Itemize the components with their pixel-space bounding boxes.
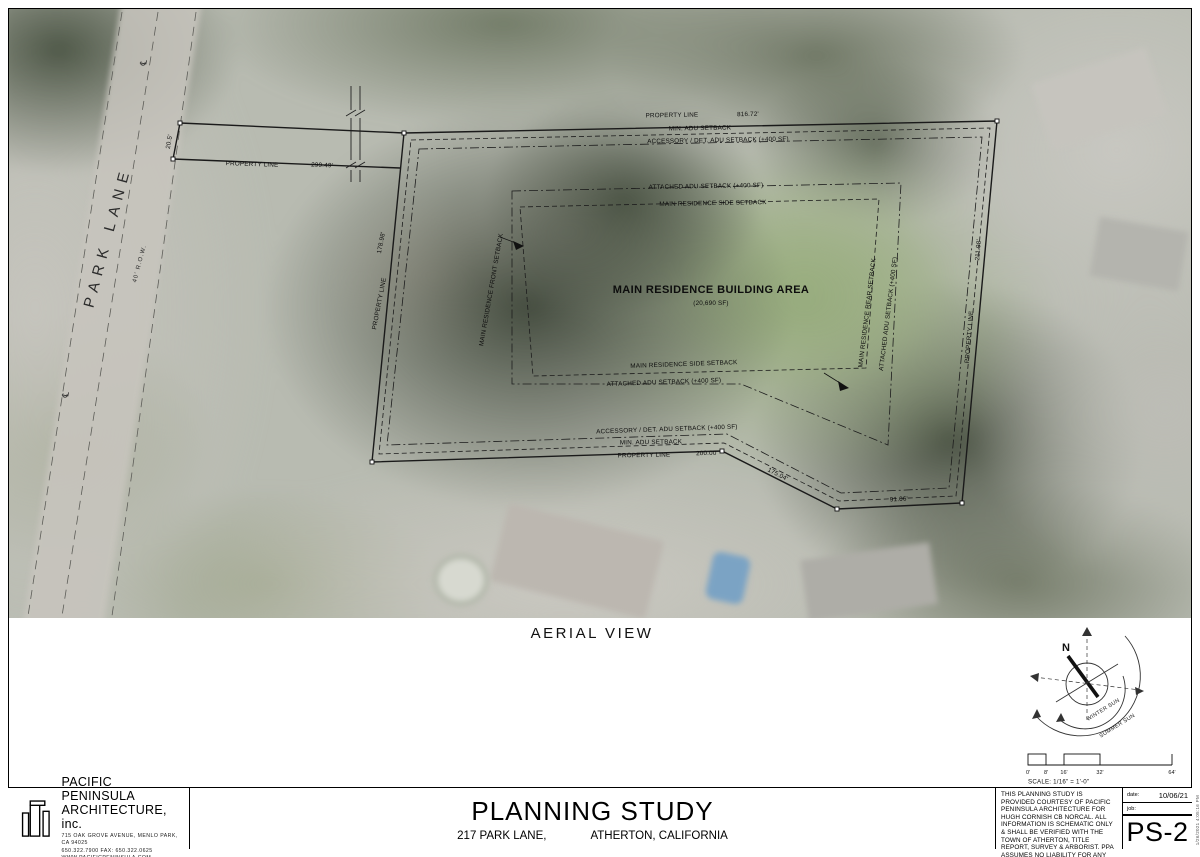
attached-adu-setback-label: ATTACHED ADU SETBACK (+400 SF)	[878, 256, 899, 371]
property-line-dim: 91.06'	[890, 496, 909, 504]
plan-labels: PROPERTY LINE 816.72' MIN. ADU SETBACK A…	[165, 111, 983, 504]
disclaimer-cell: THIS PLANNING STUDY IS PROVIDED COURTESY…	[996, 788, 1123, 849]
sheet-number: PS-2	[1123, 816, 1192, 849]
row-width-label: 40' R.O.W.	[132, 244, 148, 283]
rear-setback-label: MAIN RESIDENCE REAR SETBACK	[857, 257, 877, 368]
strip-width-dim: 20.5'	[165, 134, 174, 149]
firm-address: 715 OAK GROVE AVENUE, MENLO PARK, CA 940…	[62, 833, 186, 847]
plan-sheet: ℄ ℄ PARK LANE 40' R.O.W.	[0, 0, 1200, 857]
min-adu-setback-label: MIN. ADU SETBACK	[620, 438, 683, 446]
property-line-label: PROPERTY LINE	[646, 112, 699, 120]
building-area-sf: (20,690 SF)	[693, 300, 728, 307]
property-line-dim: 299.49'	[311, 162, 333, 170]
scale-tick: 8'	[1044, 770, 1048, 776]
property-line-label: PROPERTY LINE	[226, 160, 279, 169]
property-line-dim: 211.98'	[974, 239, 983, 261]
street-name-label: PARK LANE	[81, 164, 135, 310]
park-lane-road-lines: ℄ ℄ PARK LANE 40' R.O.W.	[28, 12, 196, 616]
sheet-info-cell: date: 10/06/21 job: PS-2	[1123, 788, 1192, 849]
arrowhead-icon	[1082, 627, 1092, 636]
project-address: 217 PARK LANE,	[457, 830, 546, 842]
scale-tick: 32'	[1096, 770, 1103, 776]
min-adu-setback-label: MIN. ADU SETBACK	[669, 124, 732, 132]
site-plan-overlay: ℄ ℄ PARK LANE 40' R.O.W.	[0, 0, 1200, 857]
date-value: 10/06/21	[1159, 791, 1188, 800]
compass: N WINTER SUN SUMMER SUN	[1030, 627, 1144, 739]
accessory-adu-setback-label: ACCESSORY / DET. ADU SETBACK (+400 SF)	[596, 424, 738, 436]
scale-tick: 0'	[1026, 770, 1030, 776]
firm-name-line1: PACIFIC PENINSULA	[62, 775, 186, 803]
firm-phone: 650.322.7900 FAX: 650.322.0625	[62, 848, 186, 855]
firm-name-line2: ARCHITECTURE, inc.	[62, 803, 186, 831]
property-line-dim: 178.98'	[376, 231, 387, 254]
attached-adu-setback-label: ATTACHED ADU SETBACK (+400 SF)	[649, 182, 764, 191]
title-block: PACIFIC PENINSULA ARCHITECTURE, inc. 715…	[8, 787, 1192, 849]
project-city: ATHERTON, CALIFORNIA	[590, 830, 727, 842]
side-setback-label: MAIN RESIDENCE SIDE SETBACK	[630, 359, 738, 370]
scale-tick: 16'	[1060, 770, 1067, 776]
scale-caption: SCALE: 1/16" = 1'-0"	[1028, 779, 1089, 786]
north-label: N	[1062, 642, 1070, 654]
disclaimer-notes: THIS PLANNING STUDY IS PROVIDED COURTESY…	[1001, 791, 1117, 857]
summer-sun-label: SUMMER SUN	[1099, 713, 1137, 740]
front-setback-label: MAIN RESIDENCE FRONT SETBACK	[478, 232, 505, 346]
project-title-cell: PLANNING STUDY 217 PARK LANE,ATHERTON, C…	[190, 788, 996, 849]
building-area-title: MAIN RESIDENCE BUILDING AREA	[613, 284, 810, 296]
break-marks	[346, 86, 365, 182]
arrowhead-icon	[1056, 713, 1065, 722]
property-line-label: PROPERTY LINE	[618, 452, 671, 460]
property-line-label: PROPERTY LINE	[964, 310, 976, 363]
accessory-adu-setback-label: ACCESSORY / DET. ADU SETBACK (+400 SF)	[647, 136, 789, 145]
scale-tick: 64'	[1168, 770, 1175, 776]
architect-stamp-cell: PACIFIC PENINSULA ARCHITECTURE, inc. 715…	[8, 788, 190, 849]
property-boundary	[173, 121, 997, 509]
arrowhead-icon	[1030, 673, 1039, 682]
view-title: AERIAL VIEW	[531, 625, 654, 642]
side-setback-label: MAIN RESIDENCE SIDE SETBACK	[659, 199, 767, 208]
plot-timestamp: 1/26/2021 4:05:16 PM	[1195, 795, 1200, 845]
arrowhead-icon	[1032, 709, 1041, 719]
sheet-title: PLANNING STUDY	[471, 796, 713, 827]
property-line-dim: 200.00'	[696, 450, 718, 457]
centerline-symbol: ℄	[138, 59, 149, 67]
north-arrow-icon	[1068, 656, 1098, 697]
property-line-dim: 816.72'	[737, 111, 759, 118]
job-label: job:	[1127, 806, 1136, 812]
scale-bar: 0' 8' 16' 32' 64' SCALE: 1/16" = 1'-0"	[1026, 754, 1176, 786]
firm-logo-icon	[20, 796, 53, 842]
winter-sun-label: WINTER SUN	[1086, 698, 1121, 723]
attached-adu-setback-label: ATTACHED ADU SETBACK (+400 SF)	[606, 377, 721, 388]
parcel-vertices	[171, 119, 999, 511]
date-label: date:	[1127, 792, 1139, 798]
